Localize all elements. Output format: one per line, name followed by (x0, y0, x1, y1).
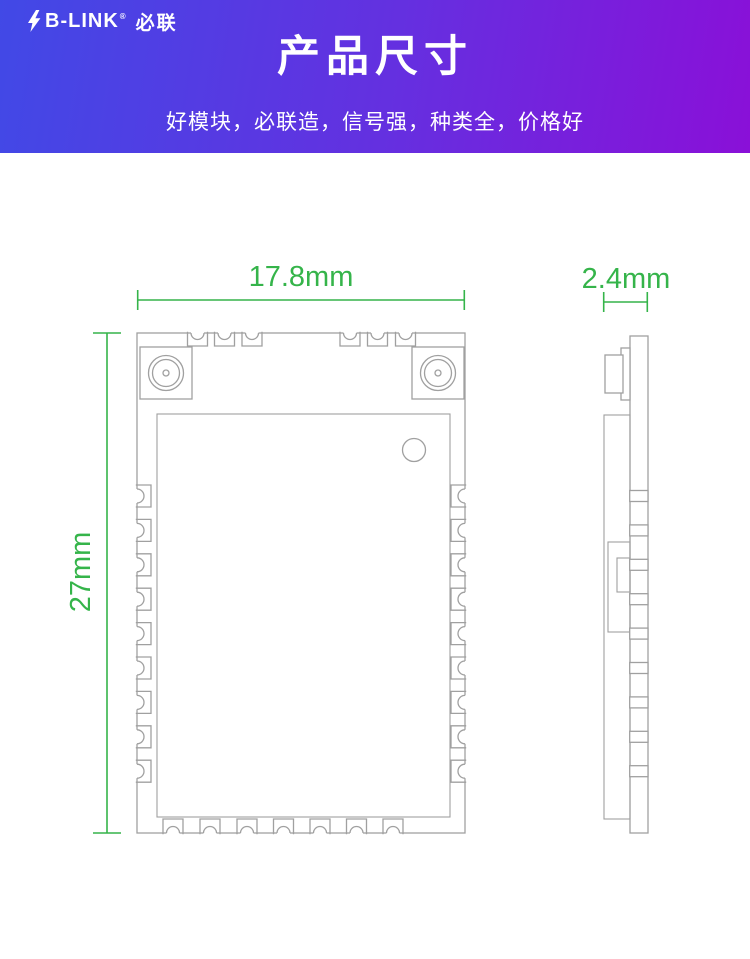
module-side-view (604, 336, 648, 833)
dimension-thickness: 2.4mm (582, 263, 671, 312)
antenna-connector-side (605, 355, 623, 393)
module-front-view (135, 331, 467, 836)
product-dimensions-page: B-LINK® 必联 产品尺寸 好模块，必联造，信号强，种类全，价格好 17.8… (0, 0, 750, 959)
component-step-inner (617, 558, 630, 592)
side-pads (630, 491, 648, 777)
brand-name-cn: 必联 (136, 8, 178, 35)
page-subtitle: 好模块，必联造，信号强，种类全，价格好 (0, 110, 750, 135)
dimension-width: 17.8mm (138, 261, 465, 310)
dimension-drawing: 17.8mm 2.4mm 27mm (0, 153, 750, 959)
component-step-outer (608, 542, 630, 632)
page-title: 产品尺寸 (0, 36, 750, 79)
module-outline (137, 333, 465, 833)
registered-trademark: ® (120, 12, 127, 21)
brand-logo: B-LINK® 必联 (27, 9, 178, 33)
dimension-width-label: 17.8mm (249, 261, 354, 293)
dimension-drawing-svg: 17.8mm 2.4mm 27mm (0, 153, 750, 959)
dimension-height-label: 27mm (65, 532, 97, 613)
banner: B-LINK® 必联 产品尺寸 好模块，必联造，信号强，种类全，价格好 (0, 0, 750, 153)
pcb-edge (630, 336, 648, 833)
dimension-thickness-label: 2.4mm (582, 263, 671, 295)
brand-name-text: B-LINK (45, 10, 119, 32)
brand-name: B-LINK® (45, 10, 127, 33)
dimension-height: 27mm (65, 333, 121, 833)
lightning-bolt-icon (27, 10, 42, 32)
